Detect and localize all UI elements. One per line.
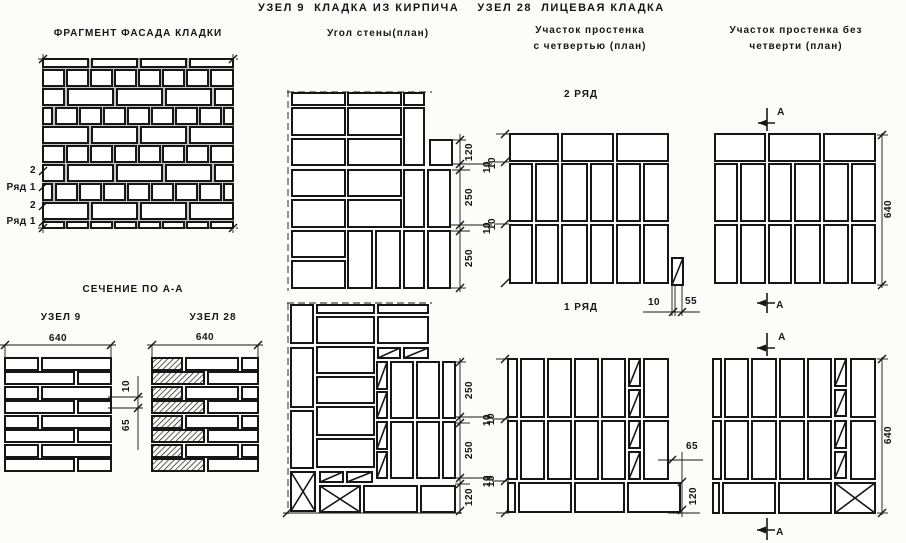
brick <box>242 358 258 370</box>
brick <box>443 362 455 418</box>
section-arrow <box>757 527 766 534</box>
brick <box>536 225 558 283</box>
brick <box>519 483 571 512</box>
quarter-dim-10: 10 <box>648 298 660 308</box>
brick <box>348 139 401 165</box>
brick <box>242 445 258 457</box>
brick <box>348 170 401 196</box>
brick <box>208 372 258 384</box>
brick <box>808 421 831 479</box>
facade-row-1b: Ряд 1 <box>2 217 36 227</box>
brick <box>644 359 668 417</box>
pier-noquarter-title-line1: Участок простенка без <box>710 26 882 36</box>
brick <box>117 89 162 105</box>
brick <box>115 70 136 86</box>
brick <box>42 416 111 428</box>
brick <box>166 89 211 105</box>
brick <box>364 486 417 512</box>
section-arrow <box>758 120 767 127</box>
pierq1-dim-10a: 10 <box>487 413 497 425</box>
brick <box>68 89 113 105</box>
brick <box>176 184 197 200</box>
facade-row-2a: 2 <box>2 166 36 176</box>
brick <box>208 459 258 471</box>
corner1-dim-120: 120 <box>465 488 475 506</box>
brick <box>211 70 233 86</box>
brick <box>725 359 748 417</box>
brick <box>741 225 765 283</box>
main-title: УЗЕЛ 9 КЛАДКА ИЗ КИРПИЧА УЗЕЛ 28 ЛИЦЕВАЯ… <box>258 3 658 14</box>
brick <box>104 184 125 200</box>
brick <box>139 70 160 86</box>
brick <box>769 134 820 161</box>
pier-noquarter-title-line2: четверти (план) <box>710 42 882 52</box>
brick <box>91 146 112 162</box>
brick <box>644 225 668 283</box>
brick <box>317 439 374 467</box>
brick <box>291 305 313 343</box>
brick <box>163 70 184 86</box>
section-mark-a-top1: А <box>778 333 786 343</box>
brick <box>292 200 345 227</box>
brick <box>186 358 238 370</box>
brick <box>5 430 74 442</box>
corner1-dim-250b: 250 <box>465 441 475 459</box>
brick <box>78 401 111 413</box>
facing-brick <box>152 430 204 442</box>
brick <box>141 127 186 143</box>
brick <box>128 184 149 200</box>
facing-brick <box>152 445 182 457</box>
brick <box>42 387 111 399</box>
brick <box>644 164 668 221</box>
brick <box>292 108 345 135</box>
dim-tick <box>501 279 509 287</box>
brick <box>56 184 77 200</box>
corner2-dim-120: 120 <box>465 143 475 161</box>
row1-label: 1 РЯД <box>545 303 617 313</box>
brick <box>317 347 374 373</box>
brick <box>591 164 613 221</box>
brick <box>391 422 413 478</box>
brick <box>190 203 233 219</box>
brick <box>208 401 258 413</box>
pier-quarter-title-line2: с четвертью (план) <box>510 42 670 52</box>
corner-title: Угол стены(план) <box>298 29 458 39</box>
brick <box>752 421 776 479</box>
brick <box>723 483 775 513</box>
brick <box>404 231 424 288</box>
brick <box>43 146 64 162</box>
brick <box>602 421 625 479</box>
facing-brick <box>152 372 204 384</box>
brick <box>404 93 424 105</box>
brick <box>348 93 401 105</box>
brick <box>5 387 38 399</box>
brick <box>115 146 136 162</box>
brick <box>42 358 111 370</box>
brick <box>851 359 875 417</box>
facing-brick <box>152 358 182 370</box>
quarter-dim-55: 55 <box>685 297 697 307</box>
uzel9-label: УЗЕЛ 9 <box>25 313 97 323</box>
brick <box>187 70 208 86</box>
brick <box>443 422 455 478</box>
brick <box>575 483 624 512</box>
brick <box>78 430 111 442</box>
pierq1-dim-10b: 10 <box>487 475 497 487</box>
section-title: СЕЧЕНИЕ ПО А-А <box>40 285 226 295</box>
brick <box>200 184 221 200</box>
brick <box>404 170 424 227</box>
brick <box>163 146 184 162</box>
brick <box>617 225 640 283</box>
brick <box>741 164 765 221</box>
brick <box>5 445 38 457</box>
brick <box>824 134 875 161</box>
facing-brick <box>152 416 182 428</box>
brick <box>348 231 372 288</box>
brick <box>808 359 831 417</box>
uzel28-label: УЗЕЛ 28 <box>170 313 256 323</box>
brick <box>521 421 544 479</box>
section-mark-a-bottom1: А <box>776 528 784 538</box>
brick <box>186 387 238 399</box>
brick <box>562 164 587 221</box>
brick <box>575 359 598 417</box>
brick <box>508 483 515 512</box>
brick <box>67 222 88 228</box>
dim-65-section: 65 <box>122 419 132 431</box>
section-mark-a-bottom2: А <box>776 301 784 311</box>
brick <box>317 407 374 435</box>
dim-640-uzel28: 640 <box>177 333 233 343</box>
section-arrow <box>757 300 766 307</box>
brick <box>378 305 428 313</box>
brick <box>43 203 88 219</box>
brick <box>824 225 848 283</box>
brick <box>417 362 439 418</box>
brick <box>428 231 450 288</box>
brick <box>644 421 668 479</box>
brick <box>291 411 313 468</box>
brick <box>548 421 571 479</box>
brick <box>428 170 450 227</box>
brick <box>43 89 64 105</box>
brick <box>824 164 848 221</box>
brick <box>348 200 401 227</box>
brick <box>43 108 52 124</box>
brick <box>152 184 173 200</box>
brick <box>91 70 112 86</box>
brick <box>292 170 345 196</box>
brick <box>713 421 721 479</box>
brick <box>617 134 668 161</box>
brick <box>769 225 791 283</box>
brick <box>510 134 558 161</box>
brick <box>292 93 345 105</box>
brick <box>141 59 186 67</box>
brick <box>117 165 162 181</box>
brick <box>190 127 233 143</box>
brick <box>200 108 221 124</box>
pierq2-dim-10b: 10 <box>488 218 498 230</box>
section-mark-a-top2: А <box>777 108 785 118</box>
brick <box>163 222 184 228</box>
corner1-dim-250a: 250 <box>465 381 475 399</box>
brick <box>715 225 737 283</box>
brick <box>215 165 233 181</box>
brick <box>56 108 77 124</box>
brick <box>78 459 111 471</box>
facing-brick <box>152 459 204 471</box>
brick <box>715 134 765 161</box>
brick <box>186 445 238 457</box>
brick <box>292 231 345 257</box>
brick <box>548 359 571 417</box>
facade-row-1a: Ряд 1 <box>2 183 36 193</box>
brick <box>378 317 428 343</box>
brick <box>591 225 613 283</box>
brick <box>562 134 613 161</box>
brick <box>152 108 173 124</box>
brick <box>752 359 776 417</box>
pier-quarter-title-line1: Участок простенка <box>510 26 670 36</box>
brick <box>521 359 544 417</box>
brick <box>224 108 233 124</box>
facing-brick <box>152 401 204 413</box>
brick <box>779 483 831 513</box>
brick <box>67 70 88 86</box>
brick <box>713 483 719 513</box>
brick <box>617 164 640 221</box>
facing-brick <box>152 387 182 399</box>
brick <box>5 459 74 471</box>
brick <box>851 421 875 479</box>
brick <box>348 108 401 135</box>
brick <box>242 416 258 428</box>
brick <box>67 146 88 162</box>
brick <box>852 225 875 283</box>
brick <box>186 416 238 428</box>
brick <box>795 164 820 221</box>
brick <box>5 358 38 370</box>
brick <box>43 59 88 67</box>
dim-10-section: 10 <box>122 380 132 392</box>
facade-title: ФРАГМЕНТ ФАСАДА КЛАДКИ <box>40 29 236 39</box>
brick <box>78 372 111 384</box>
corner2-dim-250b: 250 <box>465 249 475 267</box>
brick <box>508 359 517 417</box>
brick <box>430 140 452 165</box>
brick <box>42 445 111 457</box>
brick <box>715 164 737 221</box>
dim-640-uzel9: 640 <box>30 334 86 344</box>
brick <box>508 421 517 479</box>
pierq1-dim-65: 65 <box>686 442 698 452</box>
brick <box>187 222 208 228</box>
brick <box>628 483 680 512</box>
masonry-drawing <box>0 0 906 543</box>
brick <box>5 416 38 428</box>
brick <box>92 127 137 143</box>
brick <box>80 108 101 124</box>
brick <box>391 362 413 418</box>
brick <box>5 372 74 384</box>
brick <box>713 359 721 417</box>
piernq1-dim-640: 640 <box>884 426 894 444</box>
brick <box>780 421 804 479</box>
brick <box>141 203 186 219</box>
brick <box>43 127 88 143</box>
pierq1-dim-120: 120 <box>689 487 699 505</box>
brick <box>92 59 137 67</box>
brick <box>562 225 587 283</box>
piernq2-dim-640: 640 <box>884 200 894 218</box>
brick <box>115 222 136 228</box>
brick <box>190 59 233 67</box>
brick <box>780 359 804 417</box>
brick <box>404 108 424 165</box>
brick <box>292 261 345 288</box>
brick <box>725 421 748 479</box>
brick <box>510 225 532 283</box>
brick <box>187 146 208 162</box>
brick <box>5 401 74 413</box>
section-arrow <box>757 345 766 352</box>
corner2-dim-250a: 250 <box>465 188 475 206</box>
brick <box>291 348 313 407</box>
brick <box>208 430 258 442</box>
brick <box>417 422 439 478</box>
brick <box>602 359 625 417</box>
brick <box>104 108 125 124</box>
brick <box>317 377 374 403</box>
brick <box>317 317 374 343</box>
brick <box>43 70 64 86</box>
brick <box>510 164 532 221</box>
brick <box>139 146 160 162</box>
brick <box>224 184 233 200</box>
brick <box>211 222 233 228</box>
drawing-sheet: УЗЕЛ 9 КЛАДКА ИЗ КИРПИЧА УЗЕЛ 28 ЛИЦЕВАЯ… <box>0 0 906 543</box>
brick <box>852 164 875 221</box>
brick <box>211 146 233 162</box>
facade-row-2b: 2 <box>2 201 36 211</box>
brick <box>215 89 233 105</box>
brick <box>91 222 112 228</box>
brick <box>80 184 101 200</box>
brick <box>769 164 791 221</box>
brick <box>242 387 258 399</box>
brick <box>139 222 160 228</box>
brick <box>421 486 455 512</box>
row2-label: 2 РЯД <box>545 90 617 100</box>
brick <box>292 139 345 165</box>
brick <box>575 421 598 479</box>
brick <box>536 164 558 221</box>
brick <box>795 225 820 283</box>
brick <box>176 108 197 124</box>
brick <box>376 231 400 288</box>
brick <box>317 305 374 313</box>
brick <box>92 203 137 219</box>
pierq2-dim-10a: 10 <box>488 157 498 169</box>
brick <box>128 108 149 124</box>
brick <box>68 165 113 181</box>
brick <box>166 165 211 181</box>
